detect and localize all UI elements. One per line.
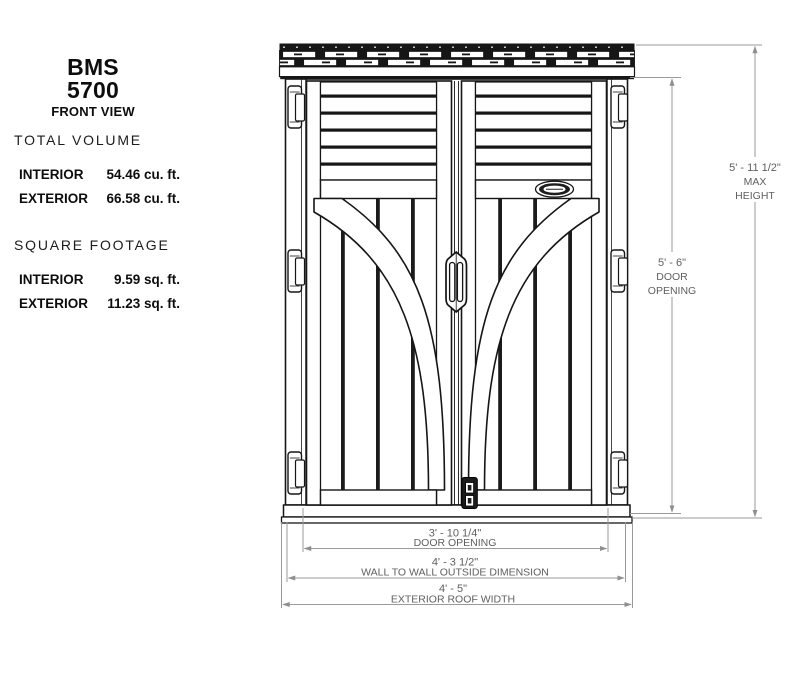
- brand-logo-badge-icon: [536, 181, 574, 197]
- door-latch-icon: [462, 478, 478, 509]
- left-door-louver-panel: [321, 82, 437, 180]
- roof-fascia: [280, 67, 635, 77]
- hinge-icon: [611, 86, 628, 128]
- roof-shingle-row-1: [280, 51, 635, 59]
- dim-door-opening-height-label: DOOR: [656, 271, 688, 283]
- dim-max-height-label: MAX: [744, 176, 767, 188]
- hinge-icon: [611, 250, 628, 292]
- left-door: [307, 81, 452, 505]
- left-door-bottom-rail: [321, 490, 437, 505]
- hinge-icon: [288, 86, 305, 128]
- hinge-icon: [611, 452, 628, 494]
- dim-max-height-value: 5' - 11 1/2": [729, 162, 781, 174]
- right-door-louver-panel: [476, 82, 592, 180]
- shed-base-lip: [282, 517, 633, 523]
- roof: [280, 44, 635, 80]
- shed-base: [284, 505, 631, 517]
- page: { "title_block": { "model": "BMS 5700", …: [0, 0, 800, 695]
- roof-shingle-row-2: [280, 59, 635, 67]
- dim-roof-width-label: EXTERIOR ROOF WIDTH: [391, 594, 515, 606]
- dim-max-height-label: HEIGHT: [735, 190, 775, 202]
- roof-ridge-cap: [280, 44, 635, 52]
- left-door-header-rail: [321, 180, 437, 199]
- roof-fascia-edge: [280, 77, 634, 80]
- door-handle-icon: [446, 252, 467, 312]
- dim-door-opening-height-value: 5' - 6": [658, 257, 686, 269]
- right-door-bottom-rail: [476, 490, 592, 505]
- dim-door-opening-height-label: OPENING: [648, 285, 696, 297]
- dim-wall-to-wall-label: WALL TO WALL OUTSIDE DIMENSION: [361, 567, 549, 579]
- shed-front-elevation-drawing: 5' - 6" DOOR OPENING 5' - 11 1/2" MAX HE…: [0, 0, 800, 695]
- dim-door-opening-width-label: DOOR OPENING: [414, 537, 497, 549]
- hinge-icon: [288, 250, 305, 292]
- hinge-icon: [288, 452, 305, 494]
- right-door: [462, 81, 607, 505]
